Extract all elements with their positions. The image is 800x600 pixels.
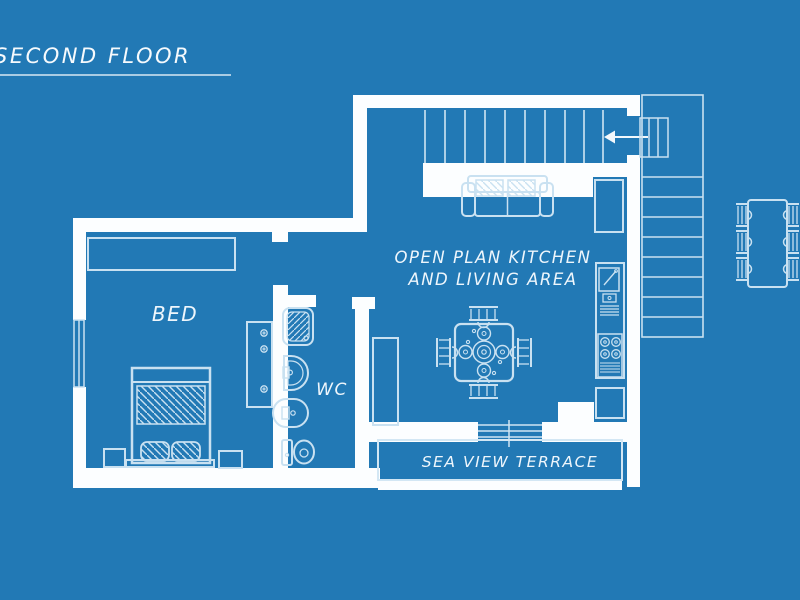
outdoor-chair [784,231,800,253]
wall-top [353,95,640,108]
window-left [74,320,84,387]
wall-wc-top [285,295,316,307]
wall-left-upper [73,218,86,320]
sink [599,268,619,315]
wall-wc-living-cap [352,297,375,309]
dining-table [455,324,513,381]
sliding-door [478,420,542,447]
wall-bedroom-door-jamb [272,232,288,242]
outdoor-chair [736,231,752,253]
sideboard-cabinet [373,338,398,425]
sink-stove-unit [596,263,624,378]
counter-top-cabinet [595,180,623,232]
floor-plan-svg: SECOND FLOOR [0,0,800,600]
outdoor-chair [736,258,752,280]
kitchen-counter [595,180,624,418]
terrace-label: SEA VIEW TERRACE [422,453,598,471]
wall-left-lower [73,387,86,473]
walls [73,95,640,490]
outdoor-chairs-left [736,204,752,280]
wall-bottom [73,468,380,488]
wardrobe [88,238,235,270]
page-title: SECOND FLOOR [0,44,191,68]
wc-label: WC [316,380,348,400]
wall-right-stub [627,108,640,116]
wall-right [627,155,640,487]
double-bed [126,368,214,467]
terrace: SEA VIEW TERRACE [378,440,622,480]
kitchen-label-line1: OPEN PLAN KITCHEN [395,248,592,267]
wall-upper-left [353,95,367,232]
outdoor-chairs-right [784,204,800,280]
wall-kitchen-corner [558,402,594,422]
outdoor-chair [784,258,800,280]
counter-bottom-cabinet [596,388,624,418]
wall-bedroom-top [73,218,365,232]
nightstand-right [219,451,242,468]
blueprint-floor-plan: SECOND FLOOR [0,0,800,600]
wall-wc-living-divider [355,297,369,470]
kitchen-label-line2: AND LIVING AREA [407,270,577,289]
outdoor-chair [736,204,752,226]
bedroom-label: BED [152,302,198,326]
stove [598,334,622,377]
bed-blanket [137,386,205,424]
outdoor-dining-table [748,200,787,287]
wall-below-stairs [423,163,640,177]
external-staircase [642,95,703,337]
nightstand-left [104,449,125,467]
internal-stairs [425,110,603,163]
outdoor-chair [784,204,800,226]
dresser [247,322,272,407]
wall-terrace-bottom [378,480,622,490]
bed-pillow-left [141,442,169,461]
bed-pillow-right [172,442,200,461]
